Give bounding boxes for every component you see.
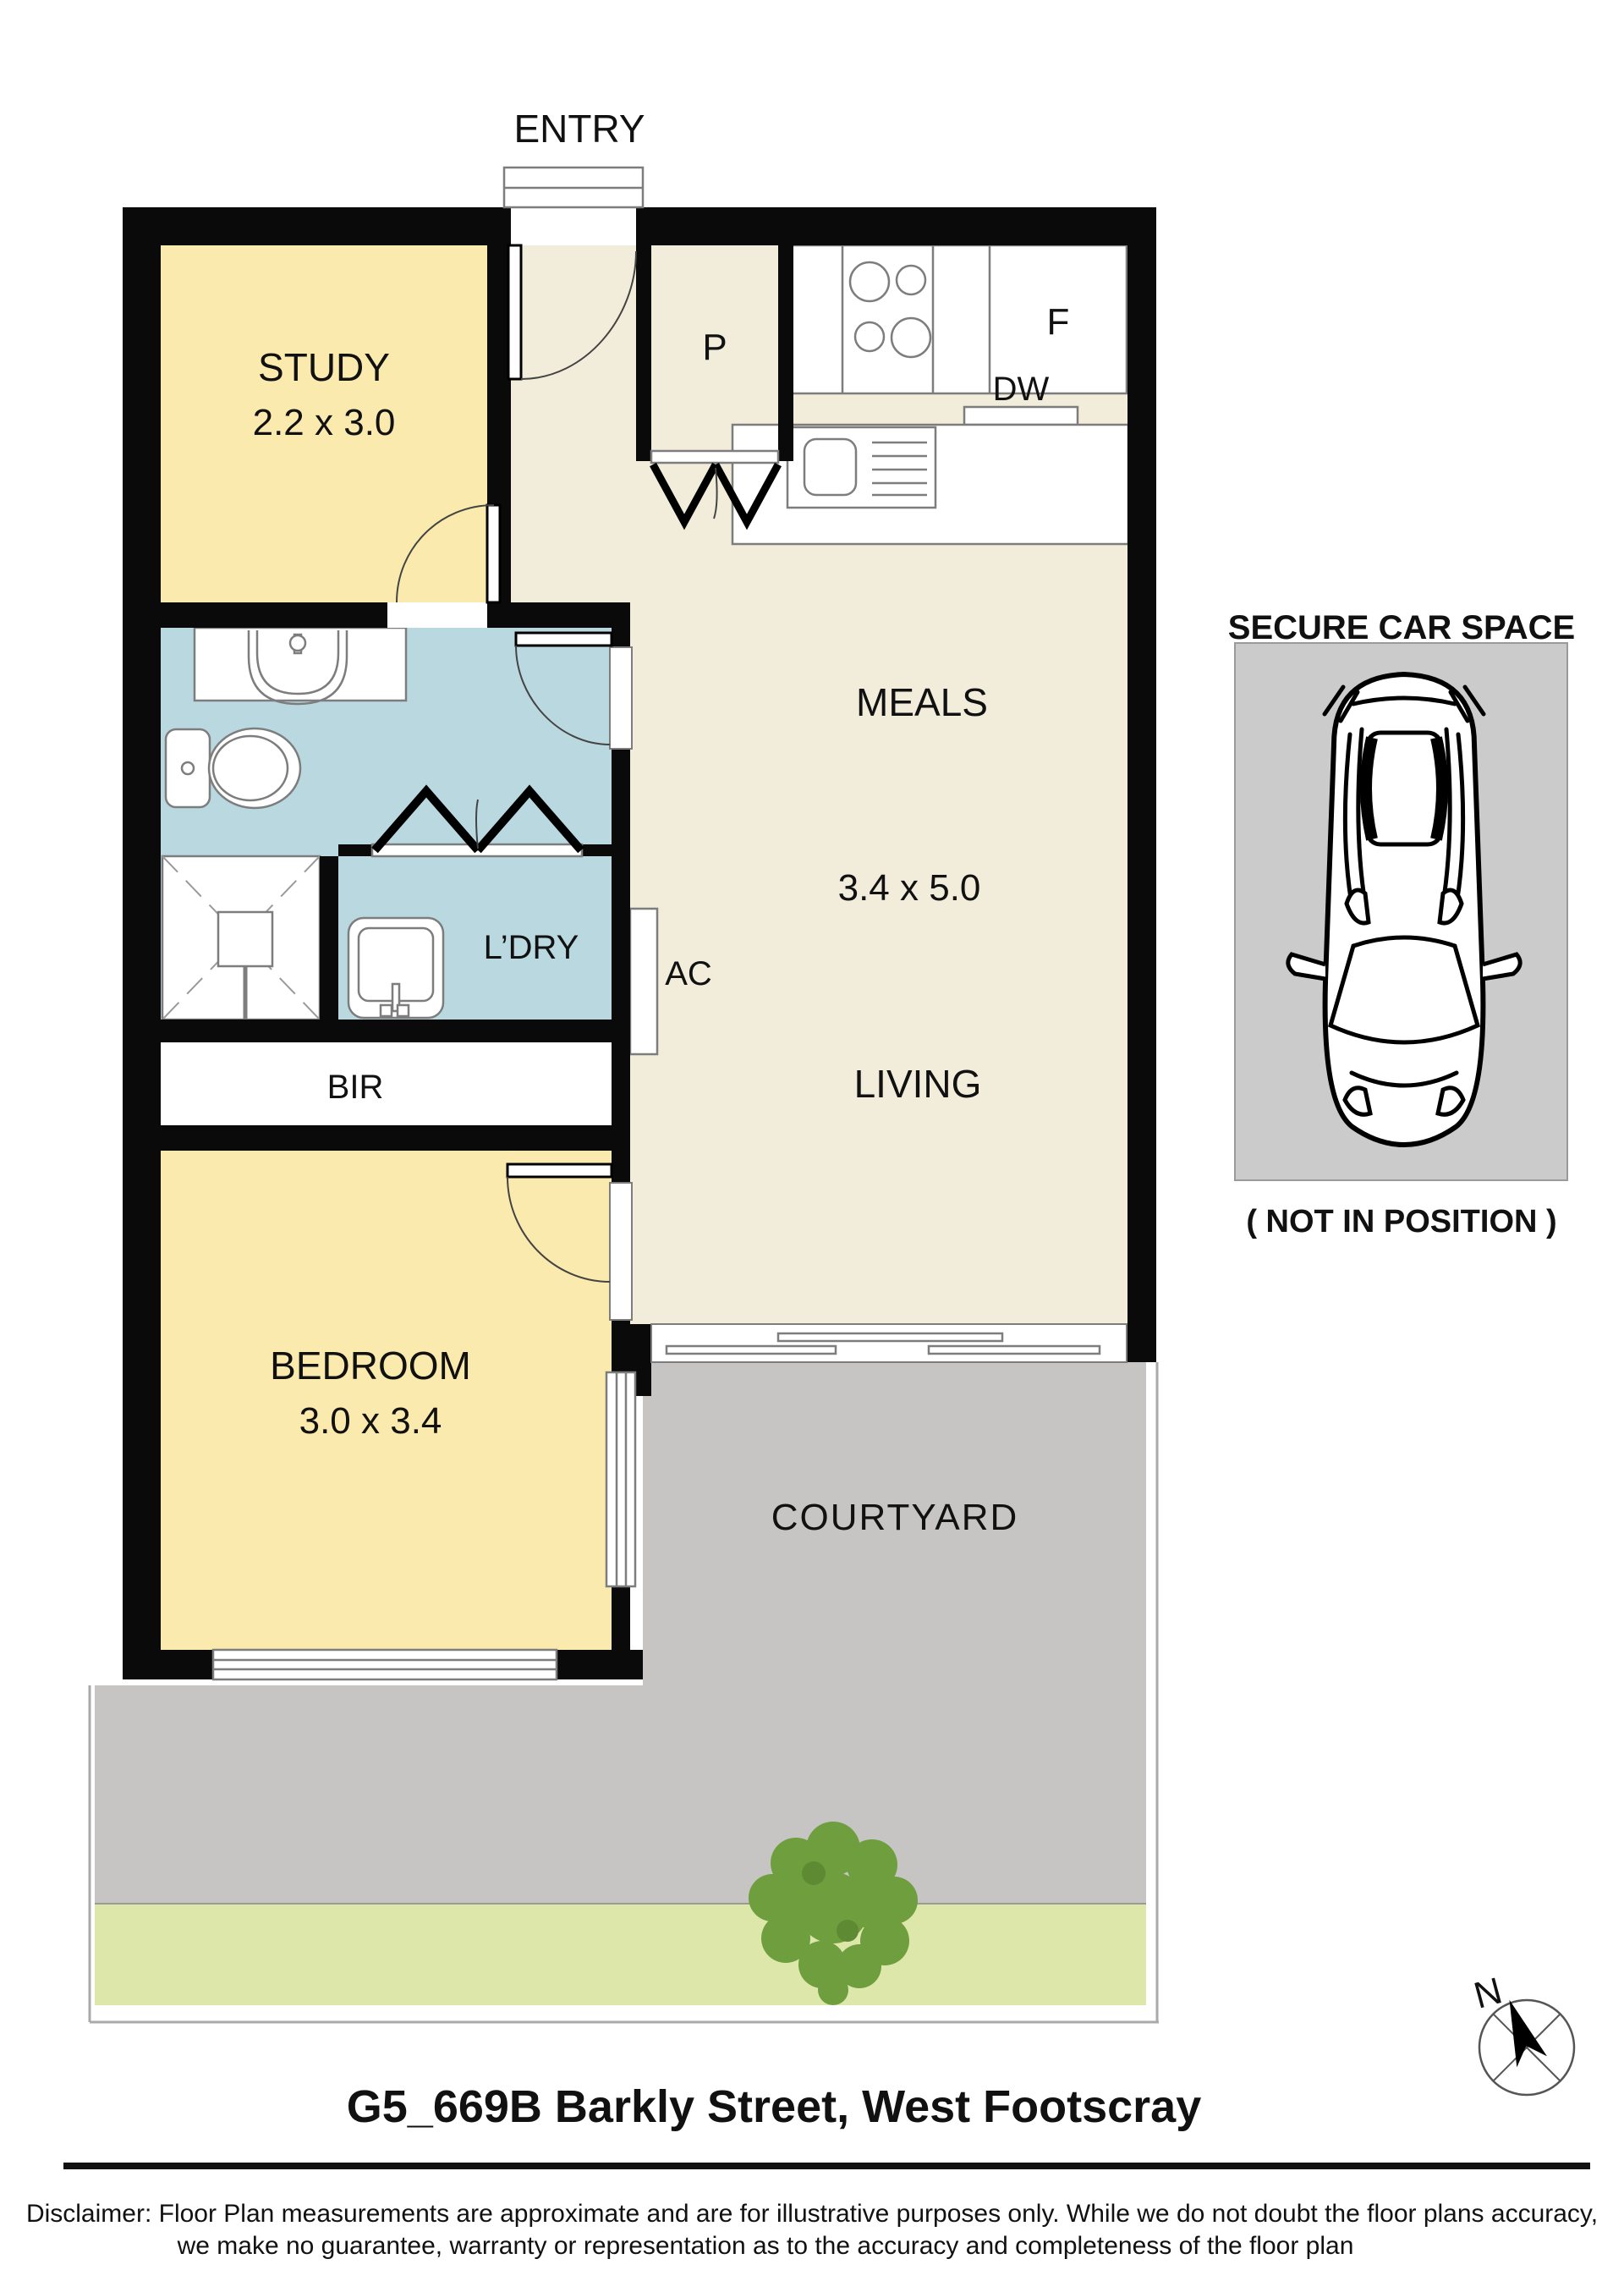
toilet-icon xyxy=(166,728,300,808)
wall-bifold-stub-right xyxy=(581,844,612,856)
bir-label: BIR xyxy=(327,1069,384,1106)
ac-label: AC xyxy=(665,955,712,992)
wall-study-bottom xyxy=(161,602,387,628)
wall-bedroom-bottom-right xyxy=(557,1650,643,1679)
courtyard-label: COURTYARD xyxy=(771,1497,1019,1538)
floor-plan-canvas: ENTRY STUDY 2.2 x 3.0 P F DW MEALS 3.4 x… xyxy=(0,0,1624,2292)
car-space-caption: ( NOT IN POSITION ) xyxy=(1246,1204,1556,1239)
dishwasher-label: DW xyxy=(993,371,1050,408)
wall-shower-laundry xyxy=(320,856,338,1020)
bir-floor xyxy=(161,1042,612,1125)
laundry-label: L’DRY xyxy=(484,929,579,966)
wall-bedroom-top xyxy=(161,1125,630,1151)
wall-top-right xyxy=(636,207,1156,245)
wall-bath-right-a xyxy=(612,628,630,647)
wall-top-left xyxy=(123,207,511,245)
page-title: G5_669B Barkly Street, West Footscray xyxy=(347,2081,1201,2132)
wall-pantry-right xyxy=(778,245,793,461)
garden-bed xyxy=(95,1904,1146,2005)
entry-label: ENTRY xyxy=(513,107,645,151)
wall-bath-right-b xyxy=(612,749,630,1183)
entry-door-leaf xyxy=(508,245,521,379)
car-space-title: SECURE CAR SPACE xyxy=(1228,609,1575,646)
sink-icon xyxy=(787,427,935,508)
sliding-door xyxy=(651,1324,1127,1362)
shower-icon xyxy=(162,856,320,1020)
fridge-label: F xyxy=(1047,301,1070,343)
ac-unit xyxy=(630,909,657,1054)
bedroom-door-opening xyxy=(610,1183,632,1320)
divider-line xyxy=(63,2163,1590,2169)
compass-north-label: N xyxy=(1470,1970,1506,2017)
living-dims: 3.4 x 5.0 xyxy=(838,867,981,909)
laundry-tub-icon xyxy=(348,918,443,1018)
pantry-bifold-threshold xyxy=(651,451,778,463)
meals-label: MEALS xyxy=(856,680,988,724)
study-door-leaf xyxy=(487,505,500,602)
footer: Disclaimer: Floor Plan measurements are … xyxy=(26,2163,1598,2260)
study-dims: 2.2 x 3.0 xyxy=(253,402,396,443)
dishwasher-unit xyxy=(964,407,1078,425)
bedroom-label: BEDROOM xyxy=(270,1344,471,1388)
wall-left xyxy=(123,245,161,1679)
wall-right xyxy=(1127,245,1156,1362)
bedroom-side-window xyxy=(606,1372,635,1586)
car-space xyxy=(1235,643,1567,1180)
disclaimer-line2: we make no guarantee, warranty or repres… xyxy=(177,2232,1354,2260)
study-door-opening xyxy=(387,602,487,628)
wall-bath-top xyxy=(487,602,630,628)
vanity-basin-icon xyxy=(195,628,406,704)
bedroom-window xyxy=(213,1650,557,1679)
study-label: STUDY xyxy=(258,345,390,389)
bedroom-door-leaf xyxy=(507,1164,612,1177)
bath-door-leaf xyxy=(516,633,612,646)
living-label: LIVING xyxy=(854,1062,982,1106)
wall-bedroom-bottom-left xyxy=(123,1650,213,1679)
wall-laundry-bottom xyxy=(161,1020,630,1042)
wall-bifold-stub-left xyxy=(338,844,375,856)
pantry-label: P xyxy=(702,327,727,368)
kitchen-bench xyxy=(789,245,1127,393)
bath-door-opening xyxy=(610,647,632,749)
disclaimer-line1: Disclaimer: Floor Plan measurements are … xyxy=(26,2200,1598,2228)
bedroom-dims: 3.0 x 3.4 xyxy=(299,1400,442,1442)
wall-pantry-left xyxy=(636,245,651,461)
